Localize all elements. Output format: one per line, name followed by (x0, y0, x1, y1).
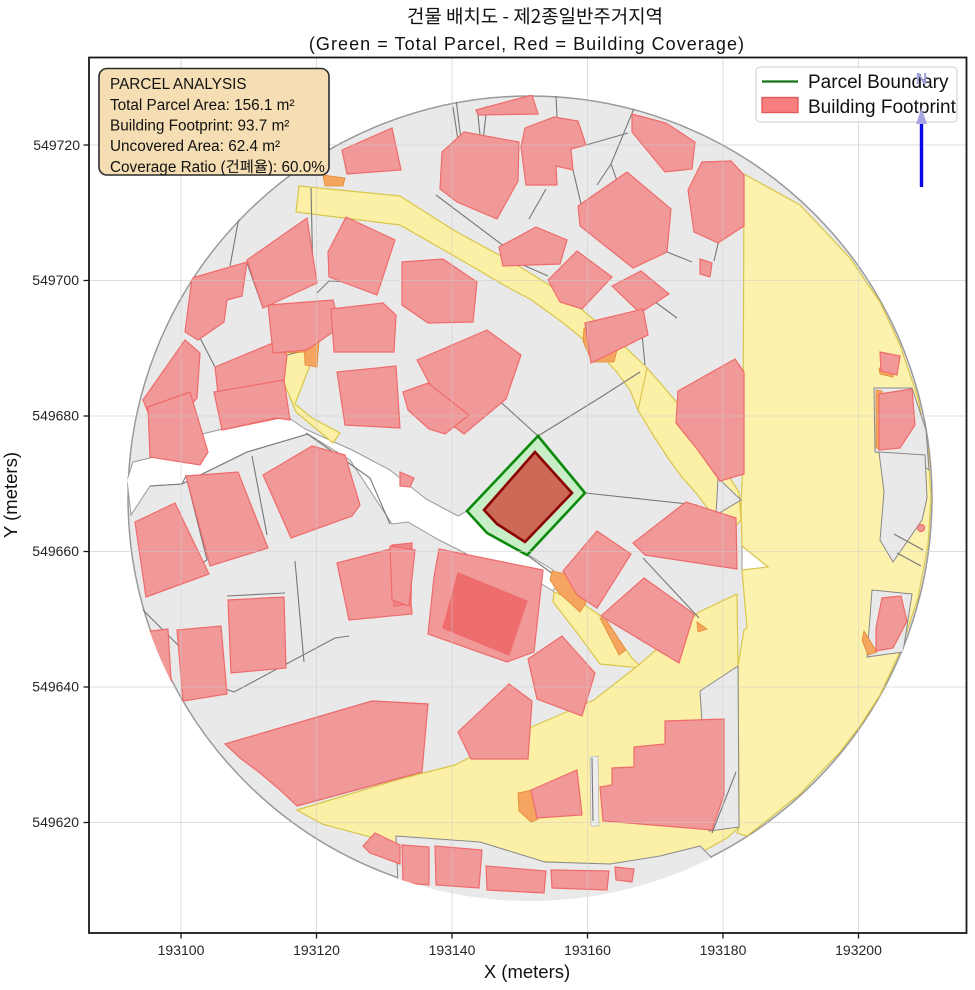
svg-text:549620: 549620 (32, 814, 79, 830)
svg-text:PARCEL ANALYSIS: PARCEL ANALYSIS (110, 76, 247, 93)
svg-text:Total Parcel Area: 156.1 m²: Total Parcel Area: 156.1 m² (110, 97, 295, 114)
svg-text:(Green = Total Parcel, Red = B: (Green = Total Parcel, Red = Building Co… (309, 34, 745, 54)
svg-text:193160: 193160 (564, 942, 611, 958)
svg-text:549720: 549720 (33, 137, 80, 153)
svg-text:549680: 549680 (32, 408, 79, 424)
svg-text:193180: 193180 (700, 942, 747, 958)
svg-text:193140: 193140 (429, 942, 476, 958)
svg-text:Y (meters): Y (meters) (0, 452, 21, 538)
svg-text:X (meters): X (meters) (484, 961, 570, 982)
svg-text:): 60.0%: ): 60.0% (268, 159, 325, 176)
svg-text:Building Footprint: 93.7 m²: Building Footprint: 93.7 m² (110, 118, 289, 135)
svg-text:Building Footprint: Building Footprint (808, 97, 957, 118)
svg-text:193100: 193100 (158, 942, 205, 958)
svg-text:Parcel Boundary: Parcel Boundary (808, 72, 949, 93)
svg-text:549640: 549640 (32, 679, 79, 695)
svg-text:549700: 549700 (32, 272, 79, 288)
svg-text:193200: 193200 (835, 942, 882, 958)
svg-text:N: N (916, 71, 928, 88)
svg-text:Uncovered Area: 62.4 m²: Uncovered Area: 62.4 m² (110, 138, 280, 155)
svg-text:549660: 549660 (32, 543, 79, 559)
svg-text:Coverage Ratio (: Coverage Ratio ( (110, 159, 226, 176)
svg-text:193120: 193120 (293, 942, 340, 958)
